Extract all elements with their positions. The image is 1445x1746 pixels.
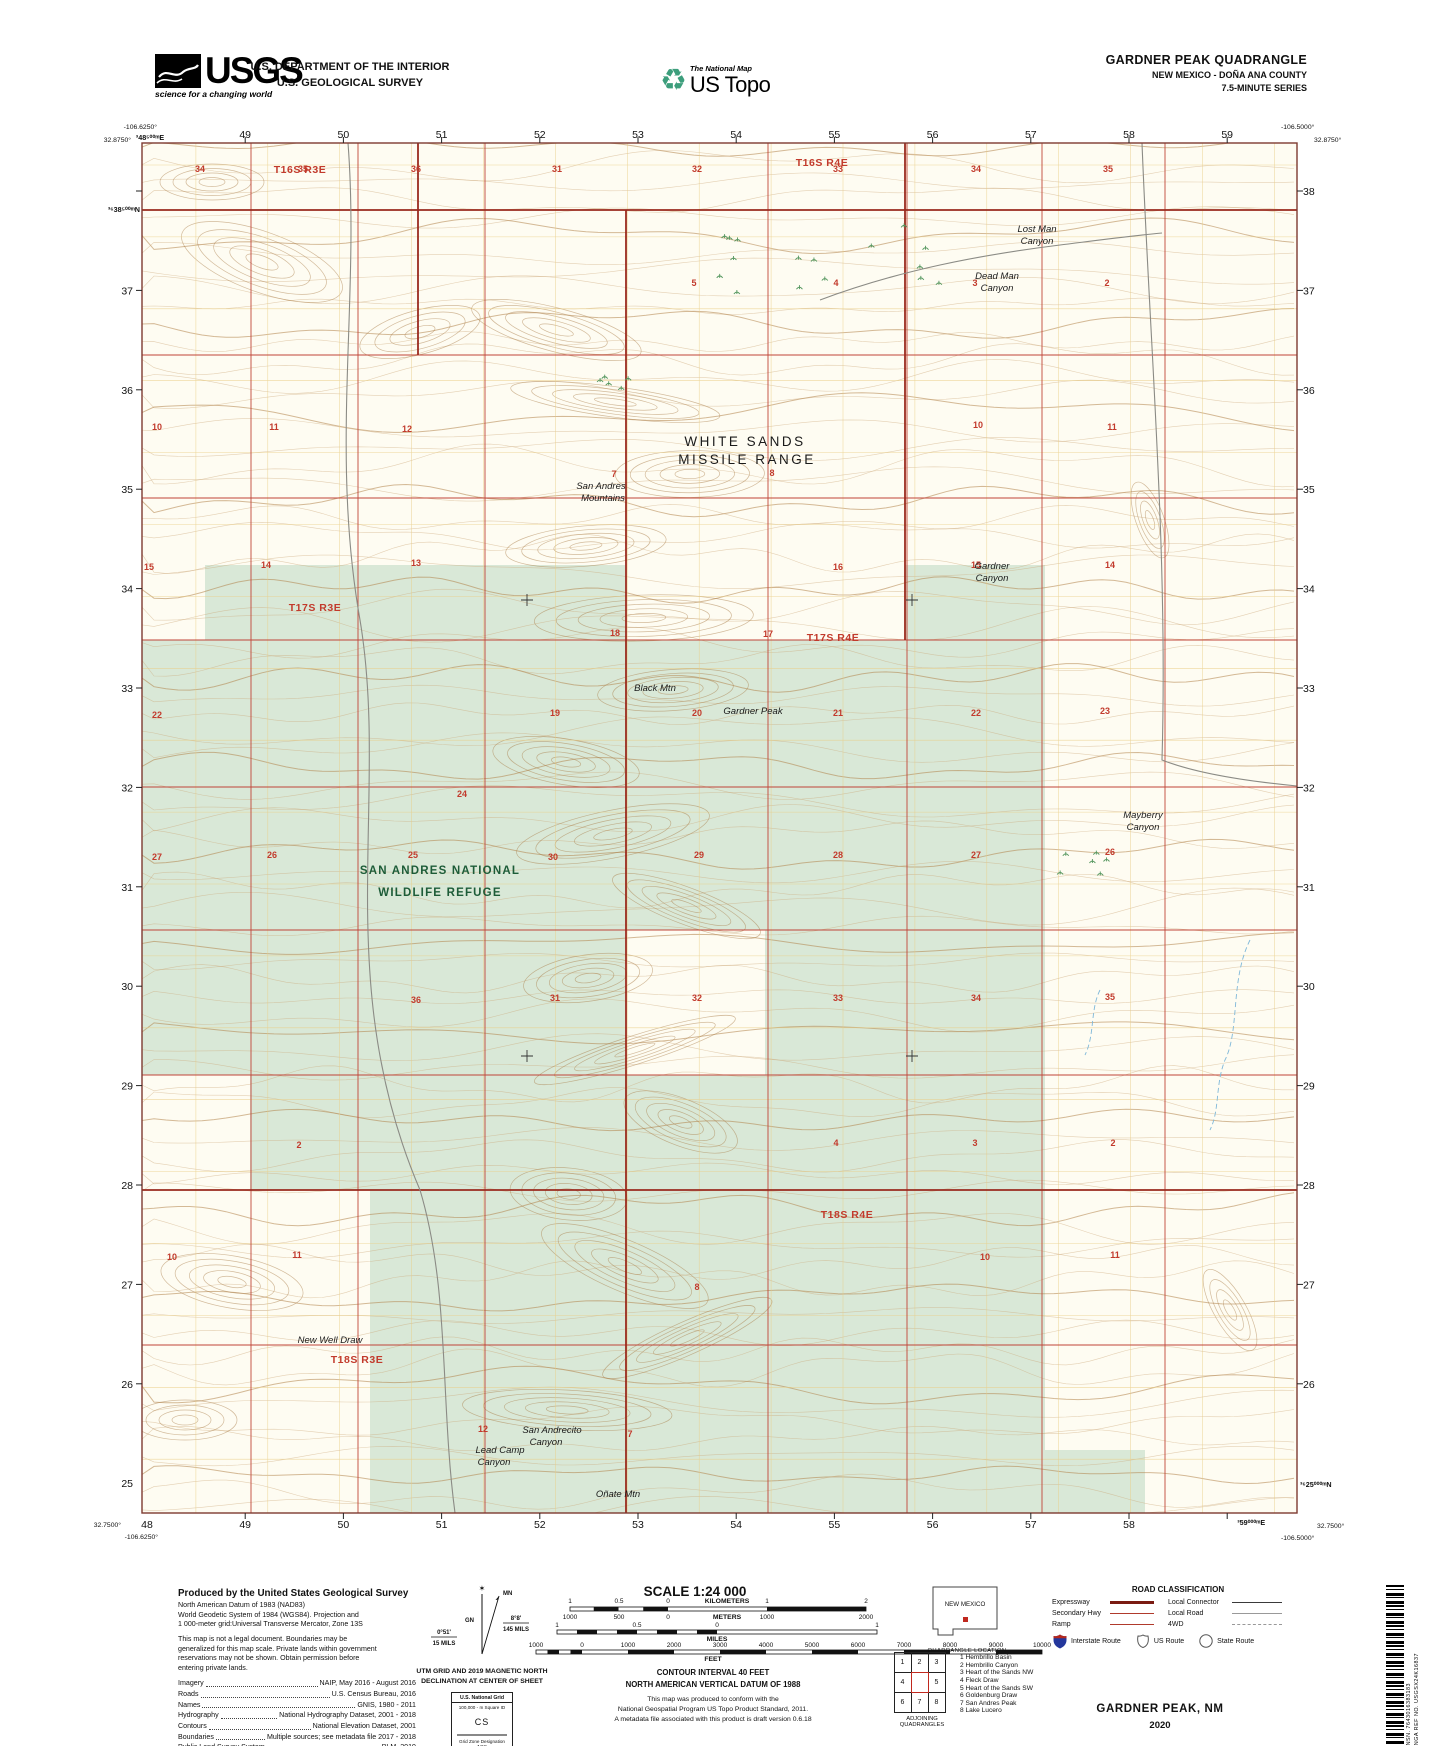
scale-bar-seg <box>617 1630 637 1634</box>
grid-number: 32 <box>121 782 133 794</box>
scale-number: 1 <box>568 1598 572 1605</box>
scale-bar-seg <box>720 1650 766 1654</box>
credit-source: Names <box>178 1700 200 1711</box>
section-number: 15 <box>144 562 154 572</box>
section-number: 28 <box>833 850 843 860</box>
section-number: 8 <box>694 1282 699 1292</box>
credit-leader <box>206 1678 318 1687</box>
adjoining-cell: 1 <box>894 1652 912 1673</box>
section-number: 11 <box>1107 422 1117 432</box>
legal-line: reservations may not be shown. Obtain pe… <box>178 1654 416 1664</box>
scale-number: 0 <box>666 1598 670 1605</box>
adjoining-cell: 5 <box>928 1672 946 1693</box>
us-route-label: US Route <box>1154 1638 1184 1645</box>
grid-number: 25 <box>121 1478 133 1490</box>
us-shield-shape <box>1137 1635 1148 1648</box>
scale-number: 0 <box>666 1614 670 1621</box>
township-label: T16S R3E <box>274 164 326 176</box>
grid-number: 37 <box>121 285 133 297</box>
credit-source: Hydrography <box>178 1710 219 1721</box>
road-classification: ROAD CLASSIFICATION Expressway Local Con… <box>1052 1585 1304 1649</box>
adjoining-caption: ADJOINING QUADRANGLES <box>894 1716 950 1728</box>
place-label: Canyon <box>478 1457 511 1468</box>
barcode-block: NSN. 7643016383183 NGA REF NO. USGSX24K1… <box>1386 1582 1420 1745</box>
scale-number: 5000 <box>805 1642 820 1649</box>
grid-number: 51 <box>436 129 448 141</box>
east-declination-mils: 145 MILS <box>503 1627 529 1633</box>
grid-number: 58 <box>1123 1519 1135 1531</box>
credit-row: ContoursNational Elevation Dataset, 2001 <box>178 1721 416 1732</box>
wildlife-refuge-tint <box>142 640 1045 930</box>
grid-number: 56 <box>927 1519 939 1531</box>
place-label: WHITE SANDS <box>684 434 805 449</box>
section-number: 32 <box>692 993 702 1003</box>
corner-coordinate: -106.6250° <box>124 123 158 131</box>
scale-bar-seg <box>643 1607 668 1611</box>
township-label: T17S R3E <box>289 602 341 614</box>
usng-square-id: CS <box>452 1717 512 1727</box>
grid-number: 55 <box>829 129 841 141</box>
place-label: Gardner Peak <box>723 706 783 717</box>
datum-lines: North American Datum of 1983 (NAD83)Worl… <box>178 1601 416 1630</box>
section-number: 21 <box>833 708 843 718</box>
section-number: 11 <box>292 1250 302 1260</box>
grid-number: 54 <box>730 1519 742 1531</box>
barcode-icon <box>1386 1585 1404 1745</box>
grid-number: 53 <box>632 129 644 141</box>
grid-number: 36 <box>121 385 133 397</box>
place-label: Mountains <box>581 493 625 504</box>
state-circle-shape <box>1200 1635 1212 1647</box>
grid-number: 30 <box>1303 981 1315 993</box>
section-number: 34 <box>971 164 981 174</box>
section-number: 27 <box>971 850 981 860</box>
grid-number: 38 <box>1303 186 1315 198</box>
section-number: 36 <box>411 995 421 1005</box>
section-number: 22 <box>152 710 162 720</box>
adjoining-names: 1 Hembrillo Basin2 Hembrillo Canyon3 Hea… <box>960 1654 1033 1715</box>
new-mexico-outline: NEW MEXICO <box>927 1584 1007 1642</box>
grid-number: 29 <box>121 1081 133 1093</box>
credit-row: HydrographyNational Hydrography Dataset,… <box>178 1710 416 1721</box>
place-label: Canyon <box>530 1437 563 1448</box>
grid-number: 31 <box>121 882 133 894</box>
scale-bar-seg <box>577 1630 597 1634</box>
adjoining-name: 4 Fleck Draw <box>960 1677 1033 1685</box>
section-number: 26 <box>267 850 277 860</box>
sheet-name: GARDNER PEAK, NM <box>1080 1703 1240 1715</box>
grid-number: 35 <box>1303 484 1315 496</box>
corner-coordinate: 32.8750° <box>104 136 132 144</box>
adjoining-quadrangles: 12345678 ADJOINING QUADRANGLES 1 Hembril… <box>894 1652 1033 1728</box>
credit-source: Contours <box>178 1721 207 1732</box>
grid-number: 33 <box>1303 683 1315 695</box>
grid-number: 35 <box>121 484 133 496</box>
section-number: 11 <box>1110 1250 1120 1260</box>
nsn-number: NSN. 7643016383183 <box>1406 1683 1412 1745</box>
place-label: Lead Camp <box>475 1445 524 1456</box>
credit-leader <box>221 1710 278 1719</box>
place-label: Canyon <box>1021 236 1054 247</box>
section-number: 34 <box>195 164 205 174</box>
usgs-topo-sheet: USGS science for a changing world U.S. D… <box>0 0 1445 1746</box>
secondary-hwy-label: Secondary Hwy <box>1052 1610 1110 1617</box>
road-classification-title: ROAD CLASSIFICATION <box>1052 1585 1304 1594</box>
grid-number: 51 <box>436 1519 448 1531</box>
section-number: 32 <box>692 164 702 174</box>
adjoining-cell: 6 <box>894 1692 912 1713</box>
shield-band <box>1054 1635 1067 1639</box>
legal-line: generalized for this map scale. Private … <box>178 1645 416 1655</box>
fourwd-swatch <box>1232 1624 1282 1625</box>
credit-value: NAIP, May 2016 - August 2016 <box>320 1678 417 1689</box>
datum-line: 1 000-meter grid:Universal Transverse Me… <box>178 1620 416 1630</box>
section-number: 16 <box>833 562 843 572</box>
us-route-shield-icon <box>1135 1633 1151 1649</box>
section-number: 29 <box>694 850 704 860</box>
scale-number: 0.5 <box>632 1622 641 1629</box>
section-number: 20 <box>692 708 702 718</box>
section-number: 31 <box>550 993 560 1003</box>
grid-number: 34 <box>1303 584 1315 596</box>
usng-box: U.S. National Grid 100,000 - m Square ID… <box>451 1692 513 1746</box>
section-number: 8 <box>769 468 774 478</box>
scale-unit: METERS <box>713 1614 742 1621</box>
place-label: San Andrecito <box>522 1425 581 1436</box>
conformance-block: This map was produced to conform with th… <box>553 1695 873 1725</box>
west-declination-degrees: 0°51' <box>437 1630 451 1636</box>
grid-number: 52 <box>534 129 546 141</box>
utm-label: ³48⁵⁰⁰ᵐE <box>136 133 165 142</box>
section-number: 35 <box>1105 992 1115 1002</box>
nga-ref-number: NGA REF NO. USGSX24K16837 <box>1414 1653 1420 1745</box>
grid-number: 28 <box>121 1180 133 1192</box>
ramp-swatch <box>1110 1624 1154 1625</box>
place-label: New Well Draw <box>298 1335 364 1346</box>
section-number: 10 <box>152 422 162 432</box>
state-shape <box>933 1587 997 1635</box>
corner-coordinate: -106.5000° <box>1281 123 1315 131</box>
scale-number: 6000 <box>851 1642 866 1649</box>
expressway-label: Expressway <box>1052 1599 1110 1606</box>
section-number: 12 <box>478 1424 488 1434</box>
grid-number: 56 <box>927 129 939 141</box>
section-number: 18 <box>610 628 620 638</box>
grid-number: 26 <box>1303 1379 1315 1391</box>
adjoining-cell-current <box>911 1672 929 1693</box>
datum-line: World Geodetic System of 1984 (WGS84). P… <box>178 1611 416 1621</box>
credit-leader <box>216 1732 265 1741</box>
local-road-swatch <box>1232 1613 1282 1614</box>
township-label: T16S R4E <box>796 157 848 169</box>
contour-interval-block: CONTOUR INTERVAL 40 FEET NORTH AMERICAN … <box>563 1667 863 1690</box>
interstate-route-label: Interstate Route <box>1071 1638 1121 1645</box>
adjoining-cell: 3 <box>928 1652 946 1673</box>
declination-caption1: UTM GRID AND 2019 MAGNETIC NORTH <box>404 1667 560 1677</box>
grid-number: 50 <box>338 129 350 141</box>
section-number: 10 <box>973 420 983 430</box>
legal-lines: This map is not a legal document. Bounda… <box>178 1635 416 1674</box>
credit-leader <box>201 1689 330 1698</box>
section-number: 27 <box>152 852 162 862</box>
legal-line: entering private lands. <box>178 1664 416 1674</box>
scale-bar-seg <box>697 1630 717 1634</box>
corner-coordinate: -106.5000° <box>1281 1534 1315 1542</box>
credit-leader <box>209 1721 311 1730</box>
utm-label: ³59⁰⁰⁰ᵐE <box>1237 1518 1265 1527</box>
scale-number: 1 <box>875 1622 879 1629</box>
grid-number: 52 <box>534 1519 546 1531</box>
credit-row: ImageryNAIP, May 2016 - August 2016 <box>178 1678 416 1689</box>
scale-number: 7000 <box>897 1642 912 1649</box>
section-number: 36 <box>411 164 421 174</box>
place-label: Gardner <box>975 561 1011 572</box>
usng-title: U.S. National Grid <box>452 1693 512 1703</box>
local-connector-swatch <box>1232 1602 1282 1603</box>
scale-bar-seg <box>594 1607 619 1611</box>
credit-row: RoadsU.S. Census Bureau, 2016 <box>178 1689 416 1700</box>
place-label: Mayberry <box>1123 810 1164 821</box>
place-label: SAN ANDRES NATIONAL <box>360 865 520 877</box>
place-label: Canyon <box>976 573 1009 584</box>
section-number: 3 <box>972 1138 977 1148</box>
grid-number: 57 <box>1025 129 1037 141</box>
produced-by-block: Produced by the United States Geological… <box>178 1588 416 1746</box>
adjoining-name: 7 San Andres Peak <box>960 1700 1033 1708</box>
section-number: 14 <box>1105 560 1115 570</box>
place-label: MISSILE RANGE <box>678 452 816 467</box>
corner-coordinate: 32.7500° <box>94 1521 122 1529</box>
utm-label: ³⁶38⁵⁰⁰ᵐN <box>108 205 140 214</box>
conformance-line: This map was produced to conform with th… <box>553 1695 873 1705</box>
scale-bar-seg <box>812 1650 858 1654</box>
grid-number: 28 <box>1303 1180 1315 1192</box>
grid-number: 50 <box>338 1519 350 1531</box>
township-label: T17S R4E <box>807 632 859 644</box>
grid-number: 49 <box>239 1519 251 1531</box>
section-number: 34 <box>971 993 981 1003</box>
credits-list: ImageryNAIP, May 2016 - August 2016Roads… <box>178 1678 416 1746</box>
utm-label: ³⁶25⁰⁰⁰ᵐN <box>1300 1480 1332 1489</box>
vertical-datum: NORTH AMERICAN VERTICAL DATUM OF 1988 <box>563 1679 863 1691</box>
adjoining-name: 8 Lake Lucero <box>960 1707 1033 1715</box>
scale-bar-seg <box>767 1607 866 1611</box>
magnetic-north-line <box>482 1596 499 1654</box>
section-number: 7 <box>627 1429 632 1439</box>
adjoining-name: 3 Heart of the Sands NW <box>960 1669 1033 1677</box>
grid-number: 57 <box>1025 1519 1037 1531</box>
credit-leader <box>267 1742 380 1746</box>
section-number: 11 <box>269 422 279 432</box>
section-number: 33 <box>833 993 843 1003</box>
produced-title: Produced by the United States Geological… <box>178 1588 416 1599</box>
grid-number: 49 <box>239 129 251 141</box>
place-label: Dead Man <box>975 271 1019 282</box>
corner-coordinate: -106.6250° <box>125 1533 159 1541</box>
grid-number: 30 <box>121 981 133 993</box>
place-label: Canyon <box>1127 822 1160 833</box>
quadrangle-location: NEW MEXICO QUADRANGLE LOCATION <box>912 1584 1022 1654</box>
local-connector-label: Local Connector <box>1168 1599 1232 1606</box>
ramp-label: Ramp <box>1052 1621 1110 1628</box>
section-number: 12 <box>402 424 412 434</box>
grid-number: 27 <box>121 1279 133 1291</box>
scale-number: 4000 <box>759 1642 774 1649</box>
section-number: 2 <box>1104 278 1109 288</box>
interstate-shield-icon <box>1052 1633 1068 1649</box>
credit-row: NamesGNIS, 1980 - 2011 <box>178 1700 416 1711</box>
state-route-circle-icon <box>1198 1633 1214 1649</box>
east-declination-degrees: 8°8' <box>511 1616 522 1622</box>
adjoining-name: 6 Goldenburg Draw <box>960 1692 1033 1700</box>
section-number: 2 <box>296 1140 301 1150</box>
section-number: 22 <box>971 708 981 718</box>
scale-number: 500 <box>614 1614 625 1621</box>
adjoining-cell: 2 <box>911 1652 929 1673</box>
section-number: 19 <box>550 708 560 718</box>
datum-line: North American Datum of 1983 (NAD83) <box>178 1601 416 1611</box>
grid-number: 59 <box>1221 129 1233 141</box>
place-label: WILDLIFE REFUGE <box>378 887 501 899</box>
scale-number: 1000 <box>621 1642 636 1649</box>
state-name: NEW MEXICO <box>945 1601 986 1608</box>
credit-leader <box>202 1700 355 1709</box>
mn-label: MN <box>503 1591 512 1597</box>
township-label: T18S R3E <box>331 1354 383 1366</box>
expressway-swatch <box>1110 1601 1154 1604</box>
scale-number: 0 <box>715 1622 719 1629</box>
adjoining-cell: 8 <box>928 1692 946 1713</box>
credit-row: Public Land Survey SystemBLM, 2019 <box>178 1742 416 1746</box>
wildlife-refuge-tint <box>250 1075 1045 1190</box>
adjoining-grid: 12345678 <box>894 1652 950 1712</box>
scale-number: 10000 <box>1033 1642 1051 1649</box>
adjoining-name: 2 Hembrillo Canyon <box>960 1662 1033 1670</box>
scale-bar-seg <box>657 1630 677 1634</box>
conformance-line: National Geospatial Program US Topo Prod… <box>553 1705 873 1715</box>
scale-number: 1000 <box>563 1614 578 1621</box>
section-number: 4 <box>833 278 838 288</box>
scale-number: 2000 <box>667 1642 682 1649</box>
gn-label: GN <box>465 1618 474 1624</box>
grid-number: 37 <box>1303 285 1315 297</box>
contour-interval: CONTOUR INTERVAL 40 FEET <box>563 1667 863 1679</box>
credit-source: Boundaries <box>178 1732 214 1743</box>
section-number: 14 <box>261 560 271 570</box>
scale-title: SCALE 1:24 000 <box>595 1584 795 1599</box>
grid-number: 34 <box>121 584 133 596</box>
place-label: Black Mtn <box>634 683 676 694</box>
scale-unit: FEET <box>704 1656 722 1663</box>
state-route-label: State Route <box>1217 1638 1254 1645</box>
section-number: 4 <box>833 1138 838 1148</box>
grid-number: 48 <box>141 1519 153 1531</box>
quad-location-dot <box>963 1617 968 1622</box>
scale-bar-seg <box>628 1650 674 1654</box>
scale-number: 1 <box>765 1598 769 1605</box>
sheet-name-block: GARDNER PEAK, NM 2020 <box>1080 1703 1240 1731</box>
sheet-year: 2020 <box>1080 1720 1240 1731</box>
section-number: 13 <box>411 558 421 568</box>
credit-row: BoundariesMultiple sources; see metadata… <box>178 1732 416 1743</box>
grid-number: 32 <box>1303 782 1315 794</box>
section-number: 10 <box>167 1252 177 1262</box>
usng-divider <box>457 1734 507 1736</box>
scale-number: 3000 <box>713 1642 728 1649</box>
scale-number: 2 <box>864 1598 868 1605</box>
place-label: Lost Man <box>1017 224 1056 235</box>
usng-zone-label: Grid Zone Designation <box>452 1739 512 1744</box>
section-number: 5 <box>691 278 696 288</box>
declination-caption2: DECLINATION AT CENTER OF SHEET <box>404 1677 560 1687</box>
wildlife-refuge-tint <box>370 1190 1045 1513</box>
section-number: 26 <box>1105 847 1115 857</box>
scale-number: 1000 <box>760 1614 775 1621</box>
fourwd-label: 4WD <box>1168 1621 1232 1628</box>
conformance-line: A metadata file associated with this pro… <box>553 1715 873 1725</box>
credit-value: National Hydrography Dataset, 2001 - 201… <box>279 1710 416 1721</box>
secondary-hwy-swatch <box>1110 1613 1154 1614</box>
section-number: 24 <box>457 789 467 799</box>
corner-coordinate: 32.7500° <box>1317 1522 1345 1530</box>
scale-number: 0.5 <box>614 1598 623 1605</box>
grid-number: 26 <box>121 1379 133 1391</box>
grid-number: 31 <box>1303 882 1315 894</box>
grid-number: 55 <box>829 1519 841 1531</box>
scale-number: 0 <box>580 1642 584 1649</box>
usng-square-label: 100,000 - m Square ID <box>452 1705 512 1710</box>
section-number: 23 <box>1100 706 1110 716</box>
section-number: 2 <box>1110 1138 1115 1148</box>
section-number: 30 <box>548 852 558 862</box>
place-label: Oñate Mtn <box>596 1489 640 1500</box>
declination-arrows: ✶ GN MN 8°8' 145 MILS 0°51' 15 MILS <box>404 1582 560 1662</box>
local-road-label: Local Road <box>1168 1610 1232 1617</box>
scale-number: 2000 <box>859 1614 874 1621</box>
credit-value: National Elevation Dataset, 2001 <box>313 1721 416 1732</box>
place-label: San Andres <box>576 481 626 492</box>
credit-value: Multiple sources; see metadata file 2017… <box>267 1732 416 1743</box>
adjoining-name: 5 Heart of the Sands SW <box>960 1685 1033 1693</box>
place-label: Canyon <box>981 283 1014 294</box>
section-number: 17 <box>763 629 773 639</box>
section-number: 25 <box>408 850 418 860</box>
grid-number: 27 <box>1303 1279 1315 1291</box>
grid-number: 33 <box>121 683 133 695</box>
township-label: T18S R4E <box>821 1209 873 1221</box>
adjoining-cell: 7 <box>911 1692 929 1713</box>
scale-bar-seg <box>571 1650 583 1654</box>
credit-source: Imagery <box>178 1678 204 1689</box>
corner-coordinate: 32.8750° <box>1314 136 1342 144</box>
scale-unit: KILOMETERS <box>705 1598 750 1605</box>
section-number: 31 <box>552 164 562 174</box>
legal-line: This map is not a legal document. Bounda… <box>178 1635 416 1645</box>
grid-number: 58 <box>1123 129 1135 141</box>
section-number: 35 <box>1103 164 1113 174</box>
west-declination-mils: 15 MILS <box>433 1641 456 1647</box>
credit-source: Public Land Survey System <box>178 1742 265 1746</box>
section-number: 10 <box>980 1252 990 1262</box>
grid-number: 53 <box>632 1519 644 1531</box>
north-star-icon: ✶ <box>479 1584 486 1593</box>
adjoining-name: 1 Hembrillo Basin <box>960 1654 1033 1662</box>
grid-number: 29 <box>1303 1081 1315 1093</box>
declination-diagram: ✶ GN MN 8°8' 145 MILS 0°51' 15 MILS UTM … <box>404 1582 560 1746</box>
section-number: 7 <box>611 469 616 479</box>
grid-number: 36 <box>1303 385 1315 397</box>
grid-number: 54 <box>730 129 742 141</box>
